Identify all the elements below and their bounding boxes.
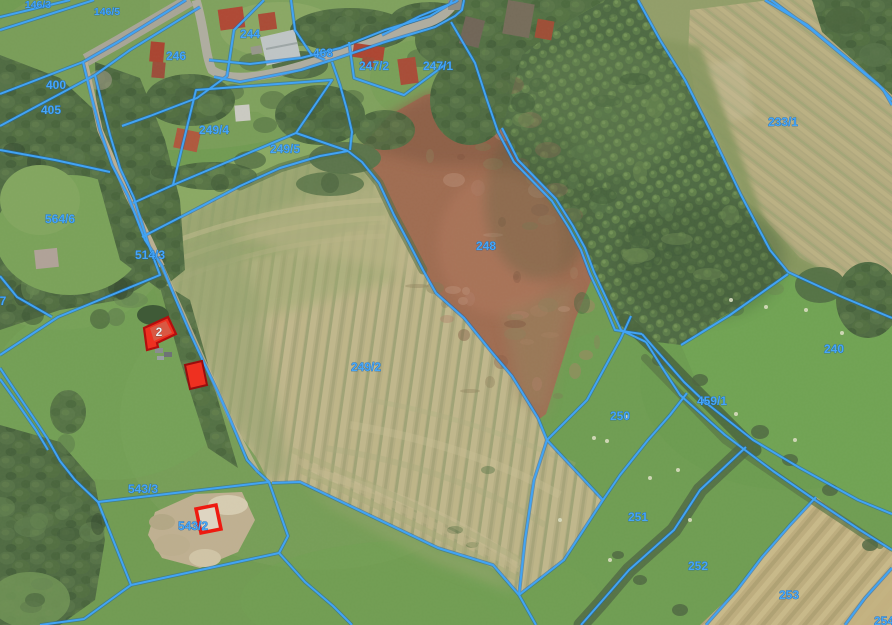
svg-text:247/2: 247/2 <box>359 59 389 73</box>
svg-text:543/3: 543/3 <box>128 482 158 496</box>
svg-text:253: 253 <box>779 588 799 602</box>
svg-text:146/5: 146/5 <box>94 6 120 18</box>
svg-text:247/1: 247/1 <box>423 59 453 73</box>
svg-text:564/6: 564/6 <box>45 212 75 226</box>
svg-text:2: 2 <box>156 325 163 339</box>
svg-text:514/3: 514/3 <box>135 248 165 262</box>
svg-text:249/4: 249/4 <box>199 123 229 137</box>
svg-text:468: 468 <box>313 46 333 60</box>
svg-text:459/1: 459/1 <box>697 394 727 408</box>
svg-text:244: 244 <box>240 27 260 41</box>
svg-text:405: 405 <box>41 103 61 117</box>
svg-text:146/3: 146/3 <box>25 0 51 11</box>
svg-text:7: 7 <box>0 294 7 308</box>
svg-text:543/2: 543/2 <box>178 519 208 533</box>
svg-text:250: 250 <box>610 409 630 423</box>
svg-text:251: 251 <box>628 510 648 524</box>
svg-text:249/5: 249/5 <box>270 142 300 156</box>
svg-text:252: 252 <box>688 559 708 573</box>
svg-text:400: 400 <box>46 78 66 92</box>
svg-text:249/2: 249/2 <box>351 360 381 374</box>
svg-text:233/1: 233/1 <box>768 115 798 129</box>
svg-text:246: 246 <box>166 49 186 63</box>
svg-text:254: 254 <box>874 614 892 625</box>
svg-text:240: 240 <box>824 342 844 356</box>
svg-text:248: 248 <box>476 239 496 253</box>
